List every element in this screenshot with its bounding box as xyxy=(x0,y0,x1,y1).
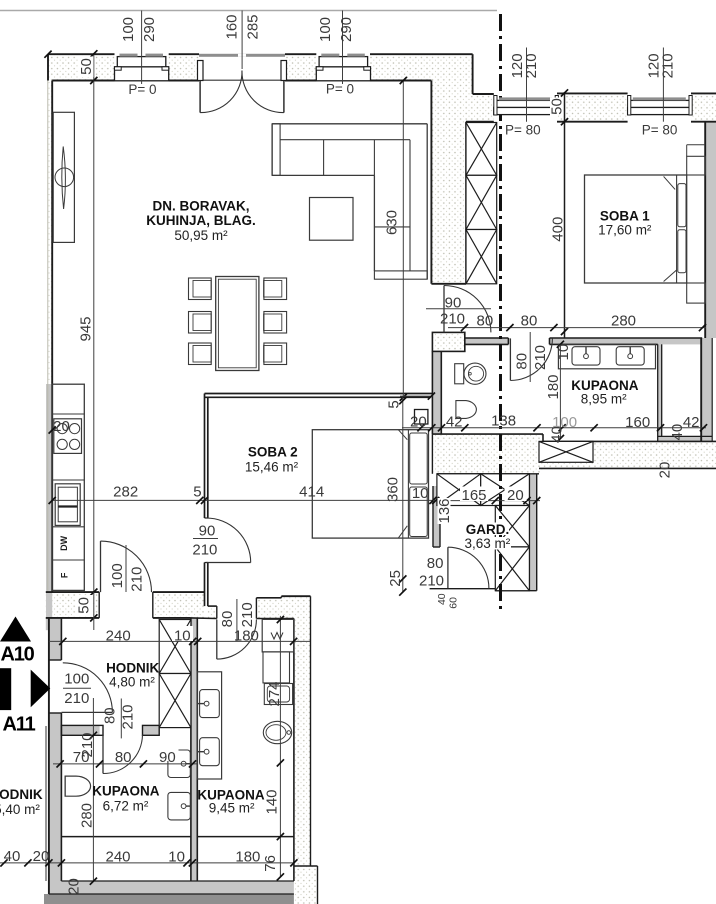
svg-text:GARD.: GARD. xyxy=(466,522,510,537)
svg-text:100: 100 xyxy=(120,17,137,42)
svg-text:210: 210 xyxy=(120,704,137,729)
svg-text:SOBA 2: SOBA 2 xyxy=(248,445,298,460)
svg-text:9,45 m²: 9,45 m² xyxy=(209,801,255,816)
svg-text:HODNIK: HODNIK xyxy=(106,661,159,676)
svg-text:50: 50 xyxy=(549,98,566,115)
svg-text:SOBA 1: SOBA 1 xyxy=(600,208,650,223)
svg-text:80: 80 xyxy=(477,313,494,330)
svg-text:10: 10 xyxy=(412,485,429,502)
svg-text:180: 180 xyxy=(234,628,259,645)
svg-text:280: 280 xyxy=(79,803,96,828)
svg-text:40: 40 xyxy=(436,593,448,605)
svg-text:P= 80: P= 80 xyxy=(642,122,678,137)
svg-text:280: 280 xyxy=(611,313,636,330)
svg-text:290: 290 xyxy=(141,17,158,42)
svg-text:A11: A11 xyxy=(3,714,36,736)
svg-text:25: 25 xyxy=(387,570,404,587)
svg-text:20: 20 xyxy=(33,848,50,865)
svg-text:210: 210 xyxy=(440,310,465,327)
svg-text:40: 40 xyxy=(4,848,21,865)
svg-text:400: 400 xyxy=(550,217,567,242)
svg-text:3,63 m²: 3,63 m² xyxy=(465,536,511,551)
svg-text:180: 180 xyxy=(235,849,260,866)
svg-text:210: 210 xyxy=(523,53,540,78)
svg-text:210: 210 xyxy=(419,573,444,590)
svg-text:80: 80 xyxy=(427,555,444,572)
svg-text:6,72 m²: 6,72 m² xyxy=(103,799,149,814)
svg-text:210: 210 xyxy=(239,602,256,627)
svg-text:240: 240 xyxy=(105,849,130,866)
svg-text:17,60 m²: 17,60 m² xyxy=(598,223,652,238)
svg-text:90: 90 xyxy=(199,523,216,540)
svg-text:210: 210 xyxy=(532,345,549,370)
svg-text:DN. BORAVAK,: DN. BORAVAK, xyxy=(153,198,250,213)
svg-text:80: 80 xyxy=(115,749,132,766)
svg-text:20: 20 xyxy=(656,462,673,479)
svg-text:KUPAONA: KUPAONA xyxy=(92,784,160,799)
svg-text:50,95 m²: 50,95 m² xyxy=(174,228,228,243)
svg-text:P= 0: P= 0 xyxy=(128,82,156,97)
svg-text:10: 10 xyxy=(555,344,572,361)
svg-text:80: 80 xyxy=(513,353,530,370)
svg-text:80: 80 xyxy=(101,707,118,724)
svg-text:210: 210 xyxy=(659,53,676,78)
svg-text:210: 210 xyxy=(128,567,145,592)
svg-text:945: 945 xyxy=(77,316,94,341)
svg-text:274: 274 xyxy=(266,681,283,706)
svg-text:F: F xyxy=(60,572,70,578)
svg-text:100: 100 xyxy=(109,563,126,588)
svg-text:P= 80: P= 80 xyxy=(505,122,541,137)
svg-text:42: 42 xyxy=(446,414,463,431)
svg-text:136: 136 xyxy=(436,498,453,523)
svg-text:80: 80 xyxy=(219,611,236,628)
svg-text:285: 285 xyxy=(244,14,261,39)
svg-text:180: 180 xyxy=(545,374,562,399)
svg-text:60: 60 xyxy=(447,597,459,609)
svg-text:5,40 m²: 5,40 m² xyxy=(0,802,40,817)
svg-text:138: 138 xyxy=(491,413,516,430)
svg-text:290: 290 xyxy=(338,17,355,42)
svg-text:140: 140 xyxy=(263,789,280,814)
svg-text:20: 20 xyxy=(410,414,427,431)
svg-text:A10: A10 xyxy=(1,644,35,666)
svg-text:165: 165 xyxy=(461,487,486,504)
svg-text:20: 20 xyxy=(65,878,82,895)
svg-text:70: 70 xyxy=(73,749,90,766)
svg-text:414: 414 xyxy=(299,484,324,501)
svg-text:P= 0: P= 0 xyxy=(326,82,354,97)
svg-text:50: 50 xyxy=(75,597,92,614)
svg-text:630: 630 xyxy=(383,210,400,235)
svg-text:KUHINJA, BLAG.: KUHINJA, BLAG. xyxy=(146,213,256,228)
svg-text:160: 160 xyxy=(223,14,240,39)
svg-text:4,80 m²: 4,80 m² xyxy=(109,675,155,690)
svg-text:210: 210 xyxy=(192,541,217,558)
svg-text:HODNIK: HODNIK xyxy=(0,787,43,802)
svg-text:8,95 m²: 8,95 m² xyxy=(581,392,627,407)
svg-text:20: 20 xyxy=(53,418,70,435)
svg-text:20: 20 xyxy=(507,487,524,504)
svg-text:10: 10 xyxy=(174,628,191,645)
svg-text:50: 50 xyxy=(78,58,95,75)
svg-text:5: 5 xyxy=(193,484,201,501)
svg-text:100: 100 xyxy=(552,414,577,431)
svg-text:76: 76 xyxy=(262,855,279,872)
svg-text:15,46 m²: 15,46 m² xyxy=(245,460,299,475)
svg-text:90: 90 xyxy=(159,749,176,766)
svg-text:360: 360 xyxy=(384,477,401,502)
svg-text:90: 90 xyxy=(445,294,462,311)
svg-text:80: 80 xyxy=(521,313,538,330)
svg-text:DW: DW xyxy=(59,535,69,550)
svg-text:5: 5 xyxy=(386,400,403,408)
svg-text:10: 10 xyxy=(168,849,185,866)
svg-text:100: 100 xyxy=(317,17,334,42)
svg-text:282: 282 xyxy=(113,484,138,501)
svg-text:42: 42 xyxy=(683,414,700,431)
svg-text:240: 240 xyxy=(106,628,131,645)
svg-text:160: 160 xyxy=(625,414,650,431)
svg-text:100: 100 xyxy=(64,671,89,688)
svg-text:210: 210 xyxy=(64,690,89,707)
